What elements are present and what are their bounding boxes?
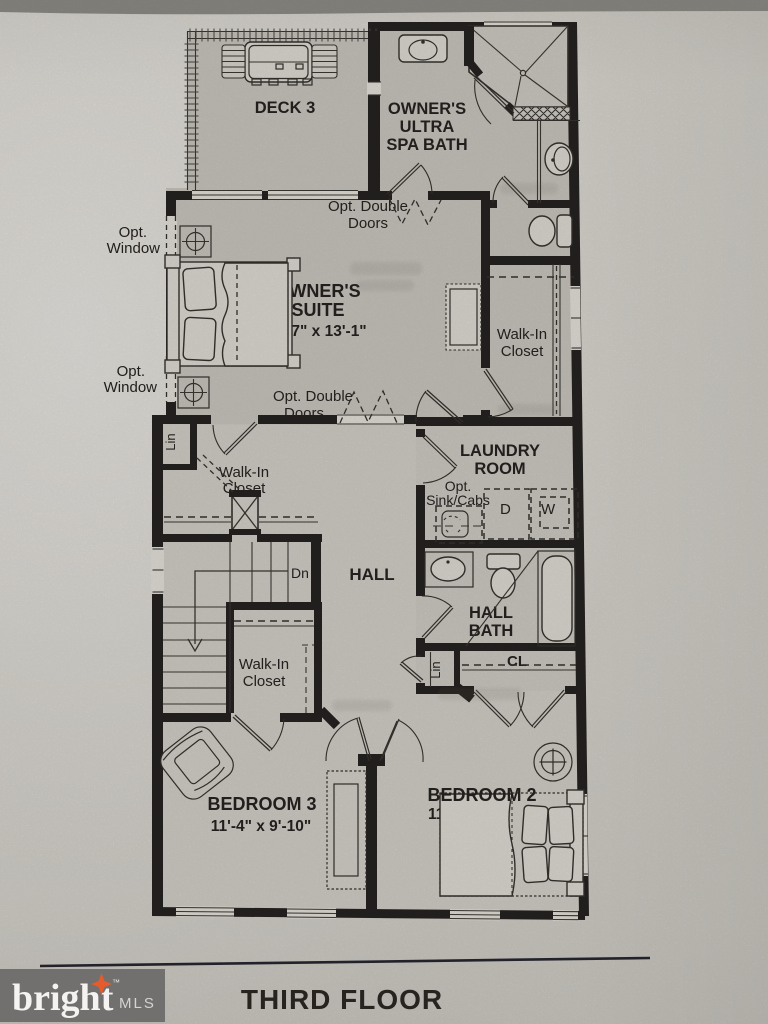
- svg-text:THIRD FLOOR: THIRD FLOOR: [241, 984, 443, 1015]
- svg-text:MLS: MLS: [119, 995, 156, 1012]
- svg-text:™: ™: [112, 978, 120, 987]
